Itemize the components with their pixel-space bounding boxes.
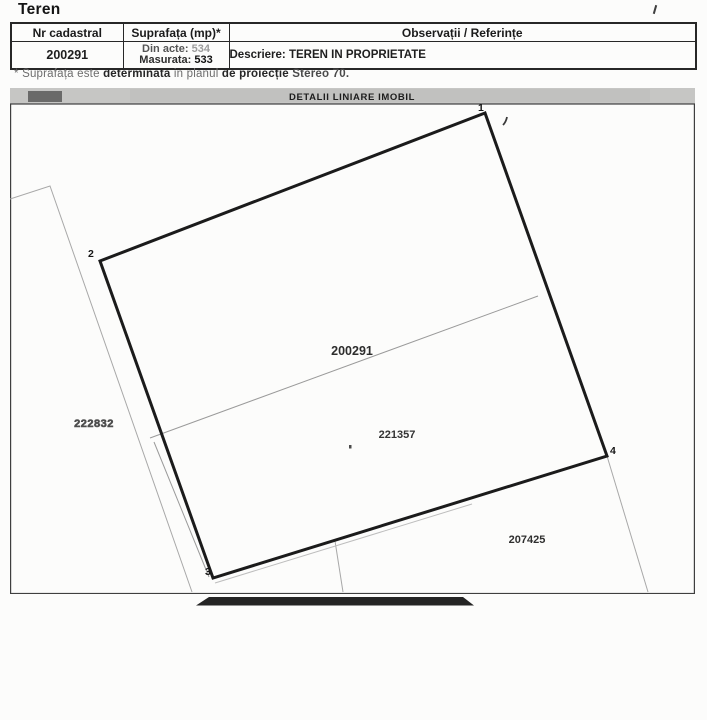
parcel-number-main: 200291 [331,344,373,358]
footnote-part: Stereo 70. [292,68,349,80]
cadastral-table: Nr cadastral Suprafața (mp)* Observații … [10,22,697,70]
plan-title: DETALII LINIARE IMOBIL [289,92,415,103]
vertex-label-1: 1 [478,102,484,114]
din-acte-label: Din acte: [142,43,188,55]
parallel-boundary-line [215,504,472,583]
masurata-label: Masurata: [139,54,191,66]
vertex-label-4: 4 [610,445,616,457]
table-header-row: Nr cadastral Suprafața (mp)* Observații … [11,23,696,42]
suprafata-cell: Din acte: 534 Masurata: 533 [123,42,229,70]
interior-subdivision-line [150,296,538,438]
footnote-part: de proiecție [222,68,292,80]
footnote-part: determinată [103,68,170,80]
scan-stray-mark [653,5,657,14]
neighbor-boundary-right [607,456,648,592]
scan-smudge [28,91,62,102]
footnote-part: * Suprafața este [14,68,103,80]
neighbor-boundary-bottom [335,541,343,592]
parcel-number-neighbor-left: 222832 [74,418,114,430]
din-acte-value: 534 [192,43,210,55]
redaction-bar [196,597,474,606]
masurata-line: Masurata: 533 [124,55,229,67]
scan-apostrophe-mark [503,117,507,125]
parcel-number-neighbor-bottom-right: 207425 [509,534,546,546]
nr-cadastral-value: 200291 [11,42,123,70]
cadastral-plan: DETALII LINIARE IMOBIL 1 2 3 4 200291 22… [10,88,695,594]
neighbor-boundary-left [10,186,192,592]
cadastral-plan-area: DETALII LINIARE IMOBIL 1 2 3 4 200291 22… [10,88,695,594]
footnote-part: in planul [170,68,221,80]
column-header-observatii: Observații / Referințe [229,23,696,42]
column-header-nr-cadastral: Nr cadastral [11,23,123,42]
page-title: Teren [18,1,61,19]
column-header-suprafata: Suprafața (mp)* [123,23,229,42]
parcel-number-sub: 221357 [379,429,416,441]
table-data-row: 200291 Din acte: 534 Masurata: 533 Descr… [11,42,696,70]
masurata-value: 533 [194,54,212,66]
footnote: * Suprafața este determinată in planul d… [14,68,349,80]
vertex-label-2: 2 [88,248,94,260]
vertex-label-3: 3 [205,566,211,578]
scan-dot [349,445,352,449]
interior-sliver-line [154,442,209,577]
observatii-value: Descriere: TEREN IN PROPRIETATE [229,42,696,70]
